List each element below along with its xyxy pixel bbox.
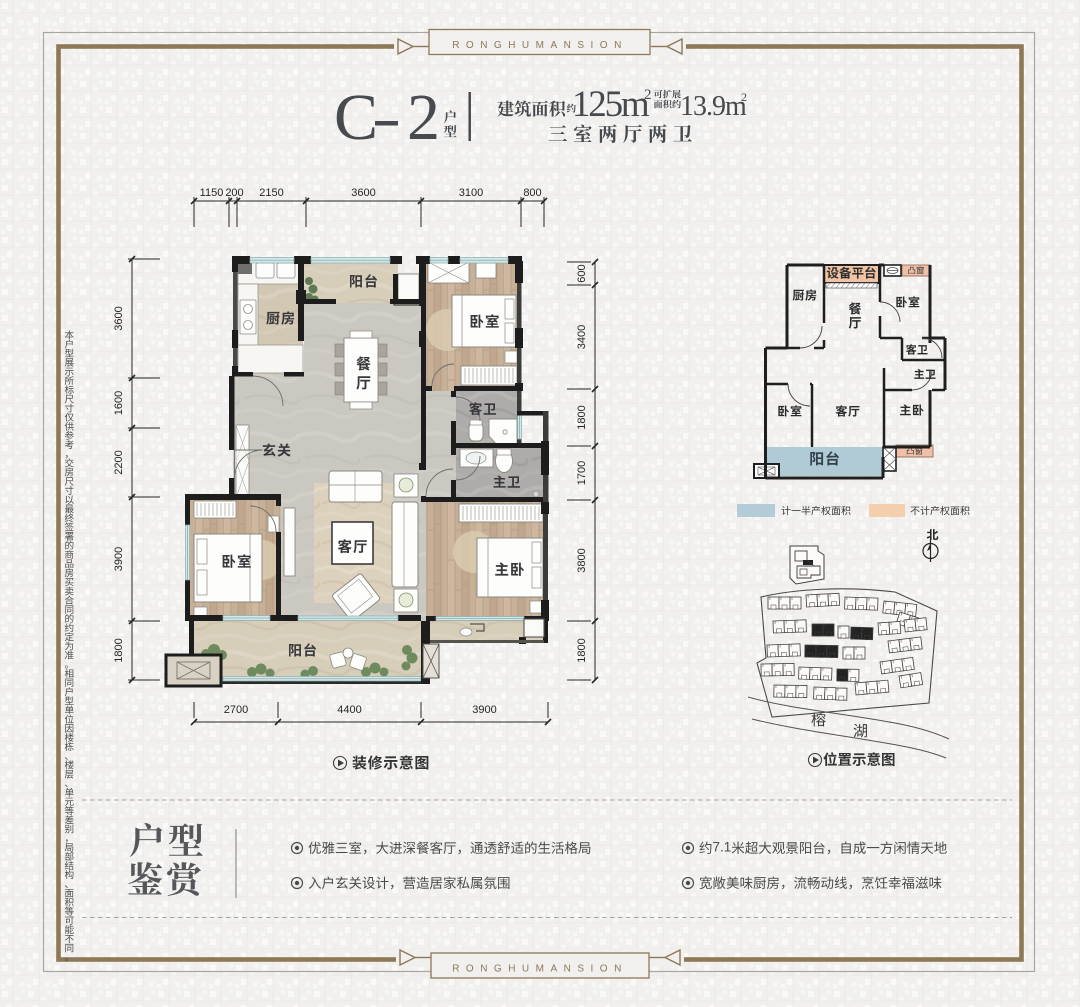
svg-text:1700: 1700: [576, 461, 588, 485]
svg-text:1: 1: [724, 840, 732, 855]
svg-text:3600: 3600: [351, 187, 375, 199]
svg-text:2: 2: [644, 87, 652, 103]
svg-text:RONGHUMANSION: RONGHUMANSION: [452, 964, 628, 975]
svg-text:3900: 3900: [472, 704, 496, 716]
svg-text:2: 2: [741, 90, 747, 104]
svg-text:1800: 1800: [576, 638, 588, 662]
svg-text:3400: 3400: [576, 325, 588, 349]
svg-text:800: 800: [523, 187, 541, 199]
svg-text:1800: 1800: [113, 638, 125, 662]
svg-text:3600: 3600: [113, 306, 125, 330]
svg-text:13.9m: 13.9m: [680, 91, 747, 122]
svg-text:2150: 2150: [259, 187, 283, 199]
svg-text:600: 600: [576, 264, 588, 282]
svg-text:200: 200: [225, 187, 243, 199]
svg-text:4400: 4400: [337, 704, 361, 716]
svg-text:1600: 1600: [113, 391, 125, 415]
svg-text:1150: 1150: [200, 187, 224, 199]
svg-text:2700: 2700: [224, 704, 248, 716]
svg-text:C: C: [334, 81, 378, 154]
svg-text:7: 7: [713, 840, 721, 855]
svg-text:3900: 3900: [113, 547, 125, 571]
svg-text:2200: 2200: [113, 450, 125, 474]
svg-text:1800: 1800: [576, 405, 588, 429]
svg-text:3800: 3800: [576, 548, 588, 572]
svg-text:125m: 125m: [572, 84, 650, 125]
svg-text:RONGHUMANSION: RONGHUMANSION: [452, 40, 628, 51]
svg-text:3100: 3100: [459, 187, 483, 199]
svg-text:2: 2: [407, 81, 440, 154]
